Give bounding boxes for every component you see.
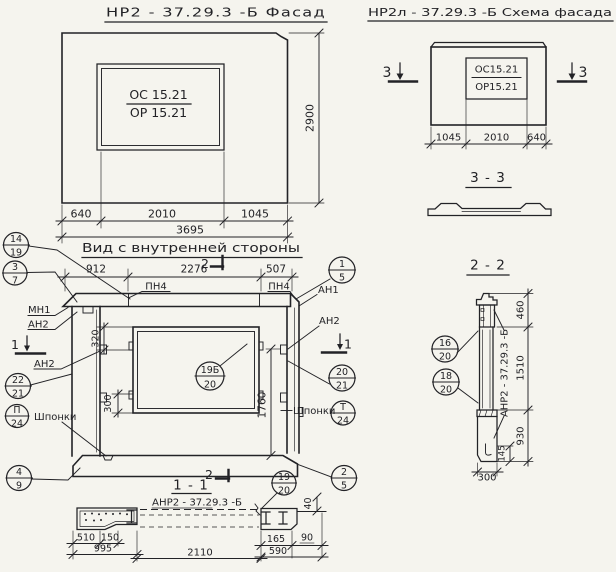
dim-150: 150 <box>101 533 119 544</box>
dim-165: 165 <box>267 534 285 545</box>
label-mn1: МН1 <box>28 305 51 316</box>
callout-18-20-top: 18 <box>440 371 452 382</box>
inner-dim-40: 40 <box>303 497 314 509</box>
callout-4-9-bottom: 9 <box>16 481 22 492</box>
anchor-hook <box>486 444 492 455</box>
facade-title: НР2 - 37.29.3 -Б Фасад <box>106 5 326 20</box>
callout-1-5-top: 1 <box>339 259 345 270</box>
callout-4-9-top: 4 <box>16 467 22 478</box>
schema-window-mark-top: ОС15.21 <box>475 65 518 76</box>
facade-window-mark-bottom: ОР 15.21 <box>130 105 187 120</box>
facade-dim-total: 3695 <box>176 224 204 237</box>
callout-3-7: 37 <box>3 261 78 302</box>
section2-marker-bottom <box>216 470 229 481</box>
schema-view: НР2л - 37.29.3 -Б Схема фасада ОС15.21 О… <box>368 6 613 149</box>
section3-marker-left-label: 3 <box>383 65 392 81</box>
label-an1: АН1 <box>318 285 339 296</box>
dim-930: 930 <box>516 426 527 445</box>
inner-dim-507: 507 <box>266 264 286 276</box>
callout-16-20-bottom: 20 <box>439 352 451 363</box>
section-1-1-label: АНР2 - 37.29.3 -Б <box>152 498 242 509</box>
right-lug-bottom <box>281 393 288 402</box>
callout-1-5-bottom: 5 <box>339 273 345 284</box>
section-2-2-wall <box>480 327 494 410</box>
callout-20-21-bottom: 21 <box>336 381 348 392</box>
dim-2110: 2110 <box>187 548 212 559</box>
dim-145: 145 <box>498 445 508 461</box>
callout-t-24-bottom: 24 <box>337 416 349 427</box>
label-an2-mid: АН2 <box>34 359 55 370</box>
callout-22-21: 2221 <box>5 374 72 400</box>
label-an2-right: АН2 <box>319 316 340 327</box>
callout-19-20-bottom: 20 <box>278 486 290 497</box>
callout-18-20-bottom: 20 <box>440 385 452 396</box>
facade-dim-2010: 2010 <box>148 208 176 221</box>
label-shponki-right: Шпонки <box>293 406 335 417</box>
section3-arrow-right <box>569 74 576 81</box>
schema-dim-640: 640 <box>527 133 546 144</box>
facade-view: НР2 - 37.29.3 -Б Фасад ОС 15.21 ОР 15.21… <box>56 5 327 244</box>
inner-dim-1760: 1760 <box>257 392 269 419</box>
section1-arrow-left <box>24 346 30 352</box>
dim-590: 590 <box>269 546 287 557</box>
right-lug-top <box>281 345 288 354</box>
panel-drawing: НР2 - 37.29.3 -Б Фасад ОС 15.21 ОР 15.21… <box>0 0 616 572</box>
anchor-channel-mid <box>262 512 270 524</box>
section3-arrow-left <box>397 74 404 81</box>
section1-arrow-right <box>337 344 343 350</box>
callout-14-19-bottom: 19 <box>10 248 22 259</box>
callout-19b-20: 19Б20 <box>195 344 247 391</box>
schema-window-mark-bottom: ОР15.21 <box>475 82 518 93</box>
section-3-3: 3 - 3 <box>428 170 551 216</box>
section-2-2: 2 - 2 АНР2 - 37.29.3 -Б 460 1510 930 145… <box>467 258 533 484</box>
section1-marker-right-label: 1 <box>344 337 352 352</box>
callout-19b-20-bottom: 20 <box>204 380 216 391</box>
section-3-3-title: 3 - 3 <box>470 170 506 186</box>
section-3-3-profile <box>428 204 551 216</box>
section-2-2-title: 2 - 2 <box>470 258 506 274</box>
facade-dim-height: 2900 <box>304 104 317 132</box>
schema-dim-1045: 1045 <box>436 133 461 144</box>
callout-19b-20-top: 19Б <box>201 365 220 376</box>
facade-window-mark-top: ОС 15.21 <box>129 87 187 102</box>
callout-4-9: 49 <box>6 466 80 492</box>
facade-dim-640: 640 <box>71 208 92 221</box>
label-shponki-left: Шпонки <box>34 412 76 423</box>
dim-995: 995 <box>94 544 112 555</box>
inner-bottom-bar <box>73 456 298 477</box>
anchor-channel-left <box>127 510 136 523</box>
callout-20-21: 2021 <box>288 361 356 392</box>
label-an2-top: АН2 <box>28 320 49 331</box>
label-pn4-left: ПН4 <box>145 282 166 293</box>
callout-2-5-top: 2 <box>341 467 347 478</box>
callout-3-7-top: 3 <box>12 262 18 273</box>
dim-300: 300 <box>477 473 496 484</box>
callout-t-24-top: Т <box>339 402 346 413</box>
section-2-2-top-cap <box>477 294 498 306</box>
section-2-2-label: АНР2 - 37.29.3 -Б <box>500 329 511 417</box>
label-pn4-right: ПН4 <box>268 282 289 293</box>
callout-14-19-top: 14 <box>10 234 22 245</box>
callout-18-20: 1820 <box>433 369 479 403</box>
inner-window-frame <box>138 332 255 409</box>
inner-dim-300: 300 <box>103 394 114 412</box>
callout-3-7-bottom: 7 <box>12 276 18 287</box>
callout-16-20: 1620 <box>432 331 479 363</box>
drawing-sheet: НР2 - 37.29.3 -Б Фасад ОС 15.21 ОР 15.21… <box>0 0 616 572</box>
section1-marker-left-label: 1 <box>11 337 19 352</box>
facade-dim-1045: 1045 <box>241 208 269 221</box>
dim-510: 510 <box>77 533 95 544</box>
callouts: 1419 37 2221 П24 49 15 2021 Т24 25 1920 … <box>3 233 479 510</box>
schema-title: НР2л - 37.29.3 -Б Схема фасада <box>368 6 612 19</box>
inner-top-bar <box>63 294 291 307</box>
callout-16-20-top: 16 <box>439 338 451 349</box>
callout-22-21-bottom: 21 <box>12 389 24 400</box>
section3-marker-right-label: 3 <box>579 65 588 81</box>
callout-2-5: 25 <box>298 465 357 492</box>
callout-2-5-bottom: 5 <box>341 481 347 492</box>
dim-1510: 1510 <box>516 355 527 380</box>
inner-dim-2276: 2276 <box>181 264 208 276</box>
inner-right-column <box>287 294 299 454</box>
callout-p-24: П24 <box>5 405 29 430</box>
schema-dim-2010: 2010 <box>484 133 509 144</box>
callout-p-24-bottom: 24 <box>11 419 23 430</box>
callout-22-21-top: 22 <box>12 375 24 386</box>
inner-view-title: Вид с внутренней стороны <box>82 240 300 255</box>
mn1-anchor <box>83 307 93 314</box>
section-1-1-title: 1 - 1 <box>173 478 209 494</box>
dim-460: 460 <box>516 300 527 319</box>
inner-dim-320: 320 <box>91 329 102 347</box>
callout-20-21-top: 20 <box>336 367 348 378</box>
dim-90: 90 <box>301 533 313 544</box>
callout-p-24-top: П <box>13 405 20 416</box>
inner-left-column <box>72 307 100 457</box>
inner-window-opening <box>133 327 259 413</box>
anchor-channel-right <box>279 512 287 524</box>
callout-19-20-top: 19 <box>278 472 290 483</box>
inner-dim-912: 912 <box>86 264 106 276</box>
